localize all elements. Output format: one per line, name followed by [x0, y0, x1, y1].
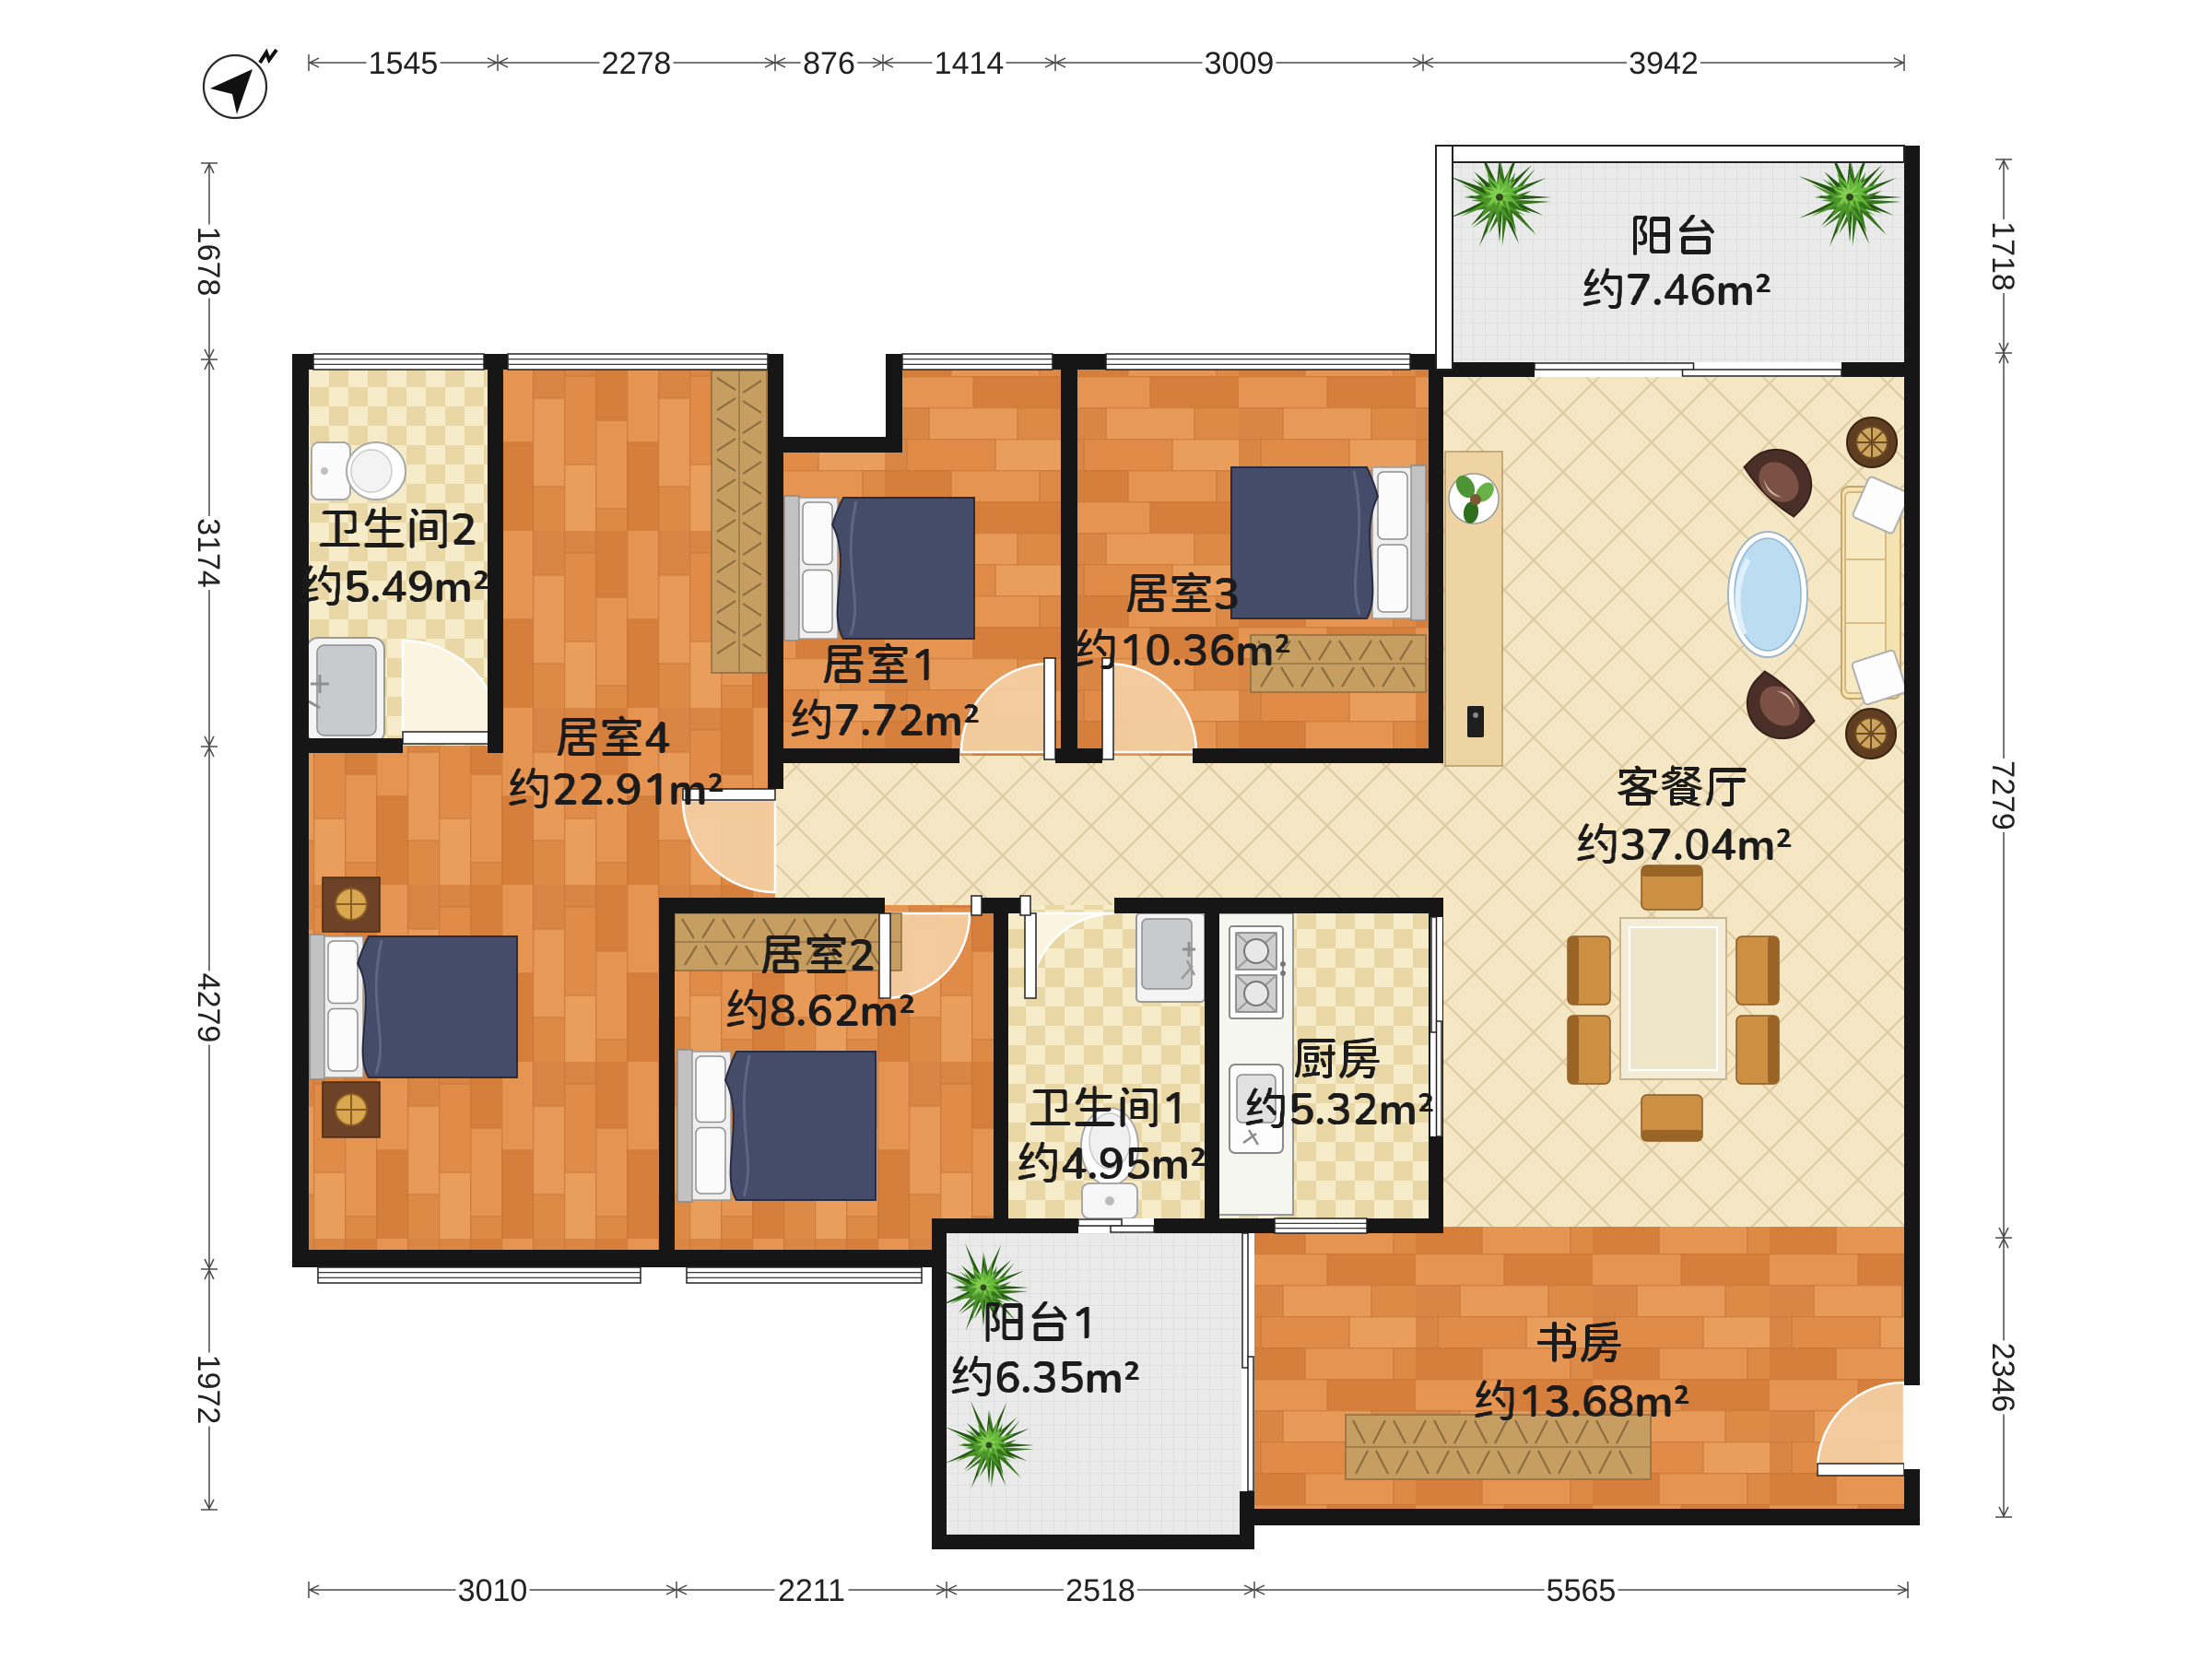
- svg-text:2518: 2518: [1065, 1573, 1135, 1608]
- svg-text:4279: 4279: [191, 973, 226, 1043]
- svg-text:1414: 1414: [935, 46, 1005, 81]
- svg-text:7279: 7279: [1985, 760, 2020, 830]
- svg-text:1972: 1972: [191, 1355, 226, 1425]
- svg-text:3010: 3010: [458, 1573, 528, 1608]
- svg-text:3174: 3174: [191, 518, 226, 588]
- svg-text:2346: 2346: [1985, 1343, 2020, 1413]
- svg-text:876: 876: [803, 46, 855, 81]
- svg-text:3942: 3942: [1629, 46, 1699, 81]
- svg-text:5565: 5565: [1547, 1573, 1617, 1608]
- svg-text:2211: 2211: [778, 1573, 845, 1608]
- svg-text:1678: 1678: [191, 227, 226, 297]
- svg-text:1545: 1545: [369, 46, 439, 81]
- svg-text:2278: 2278: [602, 46, 672, 81]
- svg-text:3009: 3009: [1205, 46, 1275, 81]
- svg-text:1718: 1718: [1985, 221, 2020, 291]
